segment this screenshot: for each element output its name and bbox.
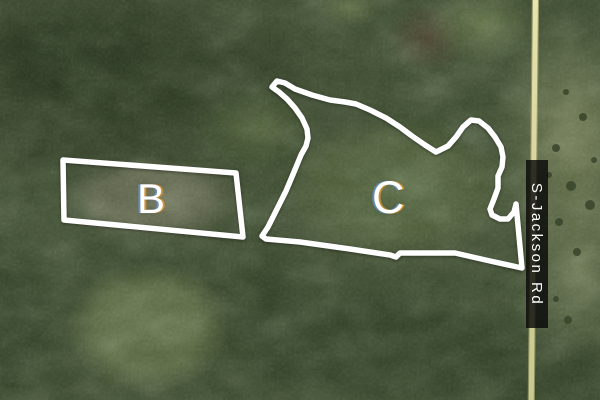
road-name-label: S-Jackson Rd: [526, 160, 548, 328]
road-name-text: S-Jackson Rd: [529, 182, 546, 305]
parcel-overlay: [0, 0, 600, 400]
map-canvas[interactable]: B C S-Jackson Rd: [0, 0, 600, 400]
parcel-b-label: B: [137, 178, 165, 220]
parcel-c-label: C: [372, 175, 405, 220]
